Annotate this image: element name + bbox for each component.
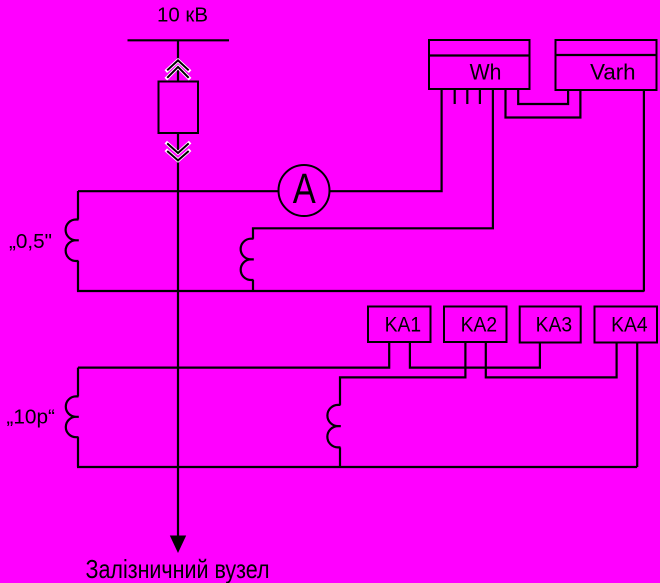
svg-text:A: A [293,165,316,213]
svg-text:KA2: KA2 [461,313,498,337]
svg-text:KA4: KA4 [611,313,648,337]
svg-text:„10р“: „10р“ [6,407,55,429]
svg-text:Wh: Wh [470,60,502,85]
svg-text:Залізничний вузел: Залізничний вузел [86,554,270,583]
svg-text:„0,5": „0,5" [9,231,52,253]
svg-text:10 кВ: 10 кВ [157,5,208,27]
svg-text:KA1: KA1 [385,313,422,337]
svg-text:Varh: Varh [590,60,636,85]
svg-text:KA3: KA3 [536,313,573,337]
